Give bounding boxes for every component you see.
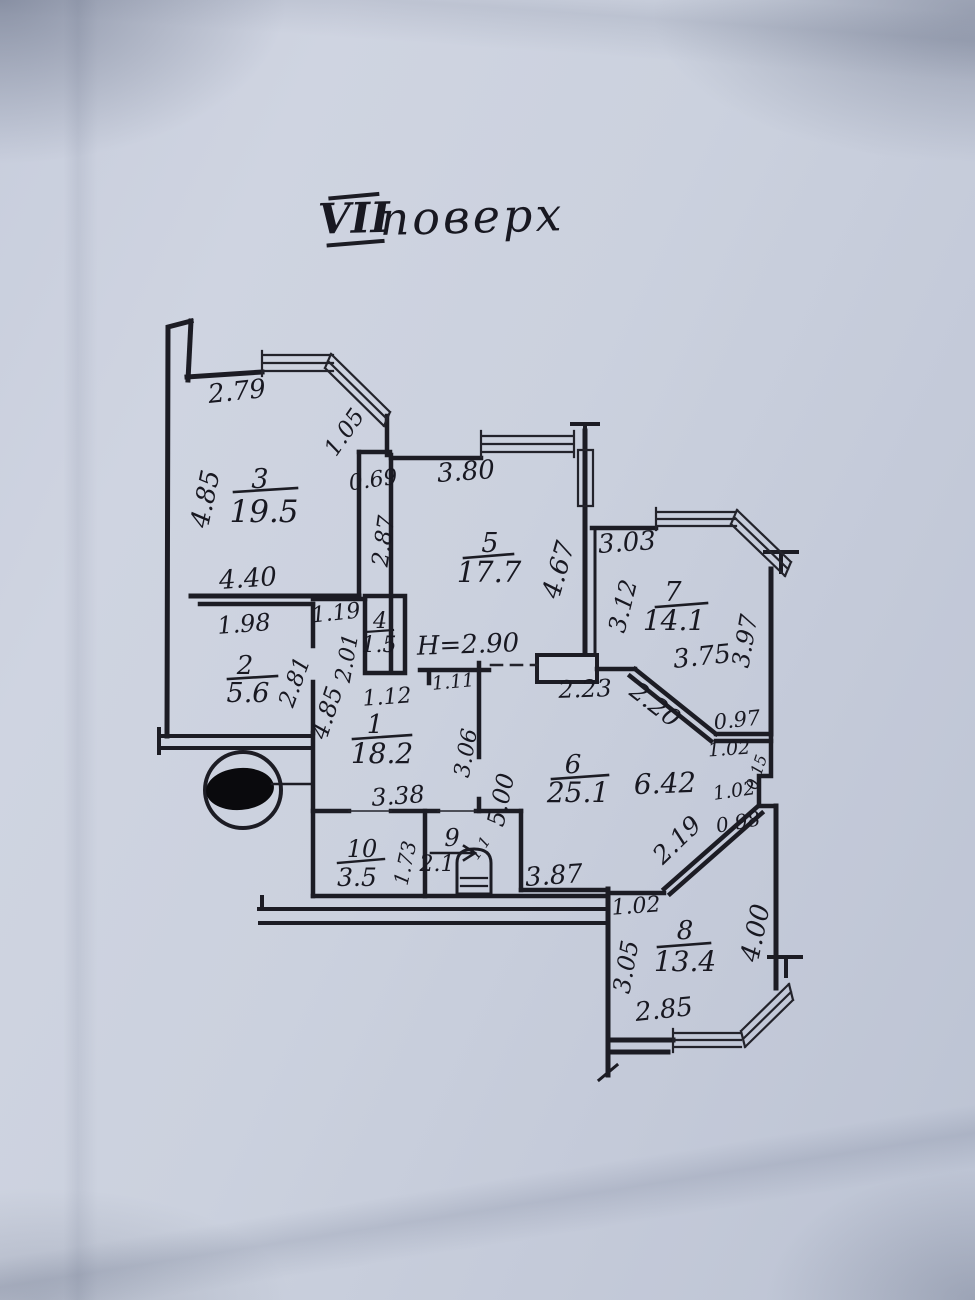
dim-room3-bottom: 4.40: [217, 562, 278, 596]
dim-room2-top: 1.98: [216, 608, 271, 640]
floor-title: VII поверх: [317, 187, 565, 247]
dim-room4-top: 1.19: [310, 599, 361, 629]
room-10-area: 3.5: [337, 863, 377, 892]
room-3-area: 19.5: [229, 494, 298, 530]
dim-room1-bottom: 3.38: [370, 780, 425, 812]
toilet-lines: [461, 878, 487, 886]
room-8-label: 8 13.4: [654, 916, 716, 978]
window-room8-diagonal: [741, 984, 793, 1047]
dim-room5-bottom-right: 2.23: [557, 674, 612, 704]
dim-niche-a: 1.02: [707, 737, 751, 762]
wall-room5-right-flag: [572, 424, 598, 431]
room-9-number: 9: [444, 824, 459, 852]
room-5-area: 17.7: [457, 555, 522, 589]
dim-room3-left: 4.85: [185, 468, 227, 532]
floor-word: поверх: [379, 187, 565, 246]
room-4-area: 1.5: [362, 633, 397, 658]
room-7-label: 7 14.1: [643, 577, 707, 637]
room-6-label: 6 25.1: [546, 750, 609, 809]
dim-room4-left: 2.01: [331, 632, 364, 686]
floor-plan-drawing: VII поверх: [0, 0, 975, 1300]
wall-bottom-left-outer: [159, 729, 313, 753]
wall-left-outer: [167, 321, 191, 736]
room-1-number: 1: [367, 710, 384, 740]
room-6-area: 25.1: [546, 776, 609, 809]
dim-niche-d: 0.98: [714, 806, 762, 837]
room-7-area: 14.1: [643, 604, 705, 637]
window-room8-horizontal: [673, 1029, 741, 1052]
room-3-label: 3 19.5: [229, 464, 298, 530]
room-2-label: 2 5.6: [227, 651, 277, 709]
window-room5-top: [481, 431, 574, 457]
dim-niche-c: 1.02: [712, 777, 757, 805]
wall-left-flag: [188, 321, 191, 380]
window-room3-horizontal: [262, 351, 333, 376]
dim-room3-right: 2.87: [367, 514, 400, 570]
dim-room10-depth: 1.73: [389, 839, 422, 888]
wall-room8-bottom: [608, 1040, 673, 1052]
room-10-label: 10 3.5: [337, 835, 384, 892]
room-1-label: 1 18.2: [351, 710, 413, 770]
redaction-blackout: [204, 765, 275, 813]
dim-room2-right: 2.81: [274, 653, 316, 711]
dim-room7-ledge: 0.97: [712, 706, 762, 735]
dim-room8-top: 1.02: [611, 892, 662, 920]
redaction-mark: [204, 752, 313, 828]
dim-room8-bottom: 2.85: [633, 992, 695, 1028]
room-5-label: 5 17.7: [457, 528, 522, 589]
dim-room1-right2: 5.00: [482, 771, 520, 829]
room-2-area: 5.6: [227, 678, 270, 709]
room-1-area: 18.2: [351, 737, 413, 770]
window-room7-horizontal: [656, 508, 736, 530]
room-8-area: 13.4: [654, 945, 716, 978]
dim-room5-top: 3.80: [436, 455, 496, 489]
dim-room8-left: 3.05: [608, 938, 645, 995]
dim-room6-bottom: 3.87: [524, 859, 584, 893]
dim-room4-below: 1.12: [362, 683, 413, 711]
room-8-number: 8: [677, 916, 694, 946]
wall-bottom-outer: [259, 897, 606, 923]
note-ceiling-height: H=2.90: [415, 628, 519, 662]
dim-room7-right: 3.97: [727, 612, 764, 670]
dim-room5-bottom-left: 1.11: [431, 669, 475, 695]
dim-room5-right: 4.67: [536, 538, 581, 603]
dim-room1-right: 3.06: [450, 727, 483, 780]
dim-room7-left: 3.12: [603, 577, 643, 636]
dim-room3-top: 2.79: [206, 374, 268, 410]
room-9-area: 2.1: [419, 852, 455, 877]
dim-room6-width: 6.42: [633, 766, 696, 801]
scanned-paper-sheet: VII поверх: [0, 0, 975, 1300]
dim-room7-bottom: 3.75: [672, 639, 733, 675]
dim-room7-top: 3.03: [597, 526, 657, 560]
